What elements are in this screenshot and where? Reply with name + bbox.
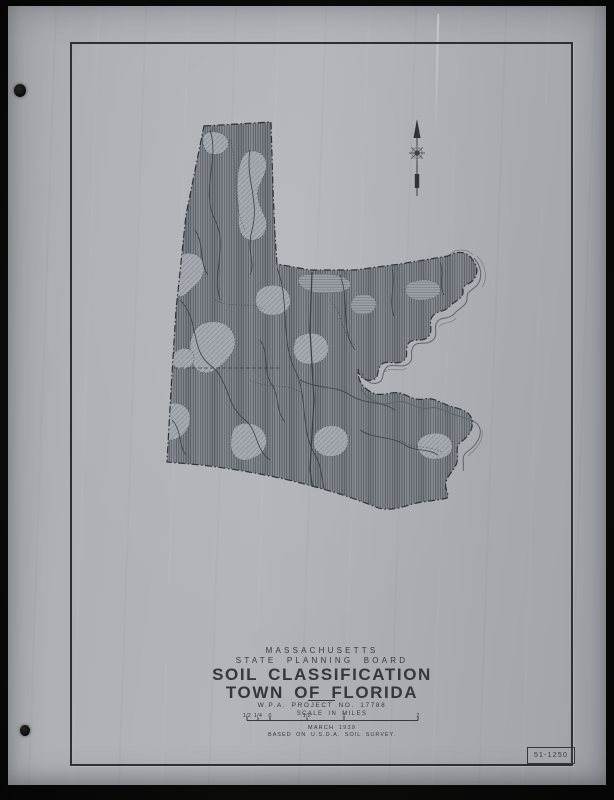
- sheet-number-box: 51-1250: [527, 747, 575, 764]
- region-label: MASSACHUSETTS: [266, 646, 379, 655]
- source-label: BASED ON U.S.D.A. SOIL SURVEY.: [268, 732, 396, 738]
- scale-tick-label: 1/4: [254, 713, 263, 719]
- scale-bar: [247, 717, 418, 721]
- map-title-line1: SOIL CLASSIFICATION: [212, 665, 432, 685]
- sheet-number: 51-1250: [534, 752, 568, 759]
- date-label: MARCH 1939: [308, 725, 356, 731]
- wpa-project-label: W.P.A. PROJECT NO. 17788: [258, 702, 387, 709]
- scale-tick-label: 1/2: [303, 713, 312, 719]
- title-underline: [308, 700, 335, 701]
- scale-tick-label: 0: [268, 713, 271, 719]
- scale-tick-label: 1: [342, 713, 345, 719]
- north-arrow-icon: [409, 119, 425, 196]
- scale-tick-label: 2: [416, 713, 419, 719]
- scale-tick-label: 1/2: [243, 713, 252, 719]
- agency-label: STATE PLANNING BOARD: [236, 656, 408, 665]
- scanned-map-photo: { "document": { "region_label": "MASSACH…: [0, 0, 614, 800]
